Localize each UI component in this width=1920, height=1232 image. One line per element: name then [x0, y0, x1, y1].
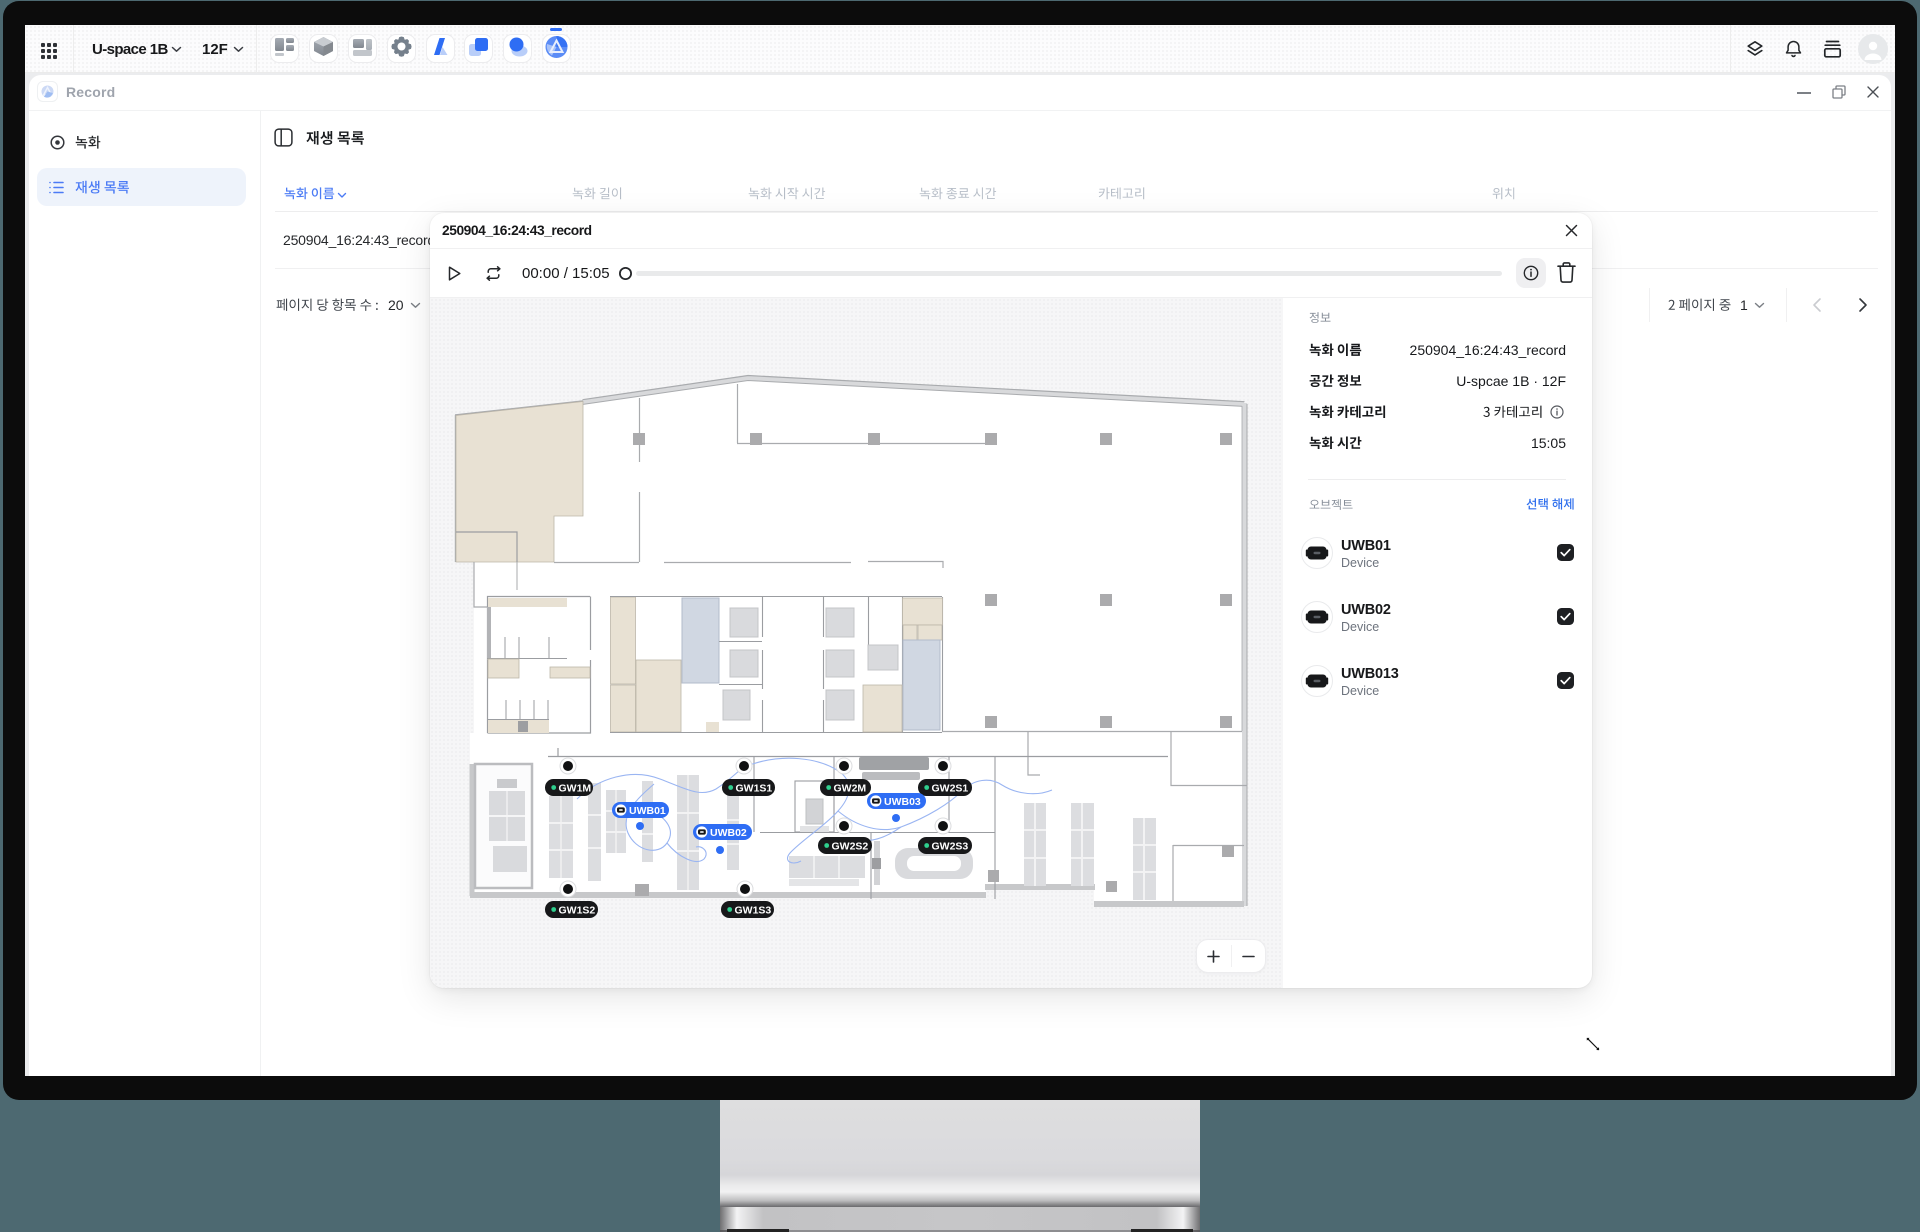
svg-text:GW1M: GW1M — [559, 783, 592, 795]
svg-text:UWB02: UWB02 — [710, 827, 747, 839]
svg-text:UWB01: UWB01 — [629, 805, 666, 817]
svg-text:GW2M: GW2M — [834, 783, 867, 795]
svg-text:GW1S1: GW1S1 — [736, 783, 773, 795]
svg-text:GW2S1: GW2S1 — [932, 783, 969, 795]
svg-text:UWB03: UWB03 — [884, 796, 921, 808]
svg-text:GW1S3: GW1S3 — [735, 905, 772, 917]
svg-text:GW2S3: GW2S3 — [932, 841, 969, 853]
svg-text:GW2S2: GW2S2 — [832, 841, 869, 853]
svg-text:GW1S2: GW1S2 — [559, 905, 596, 917]
